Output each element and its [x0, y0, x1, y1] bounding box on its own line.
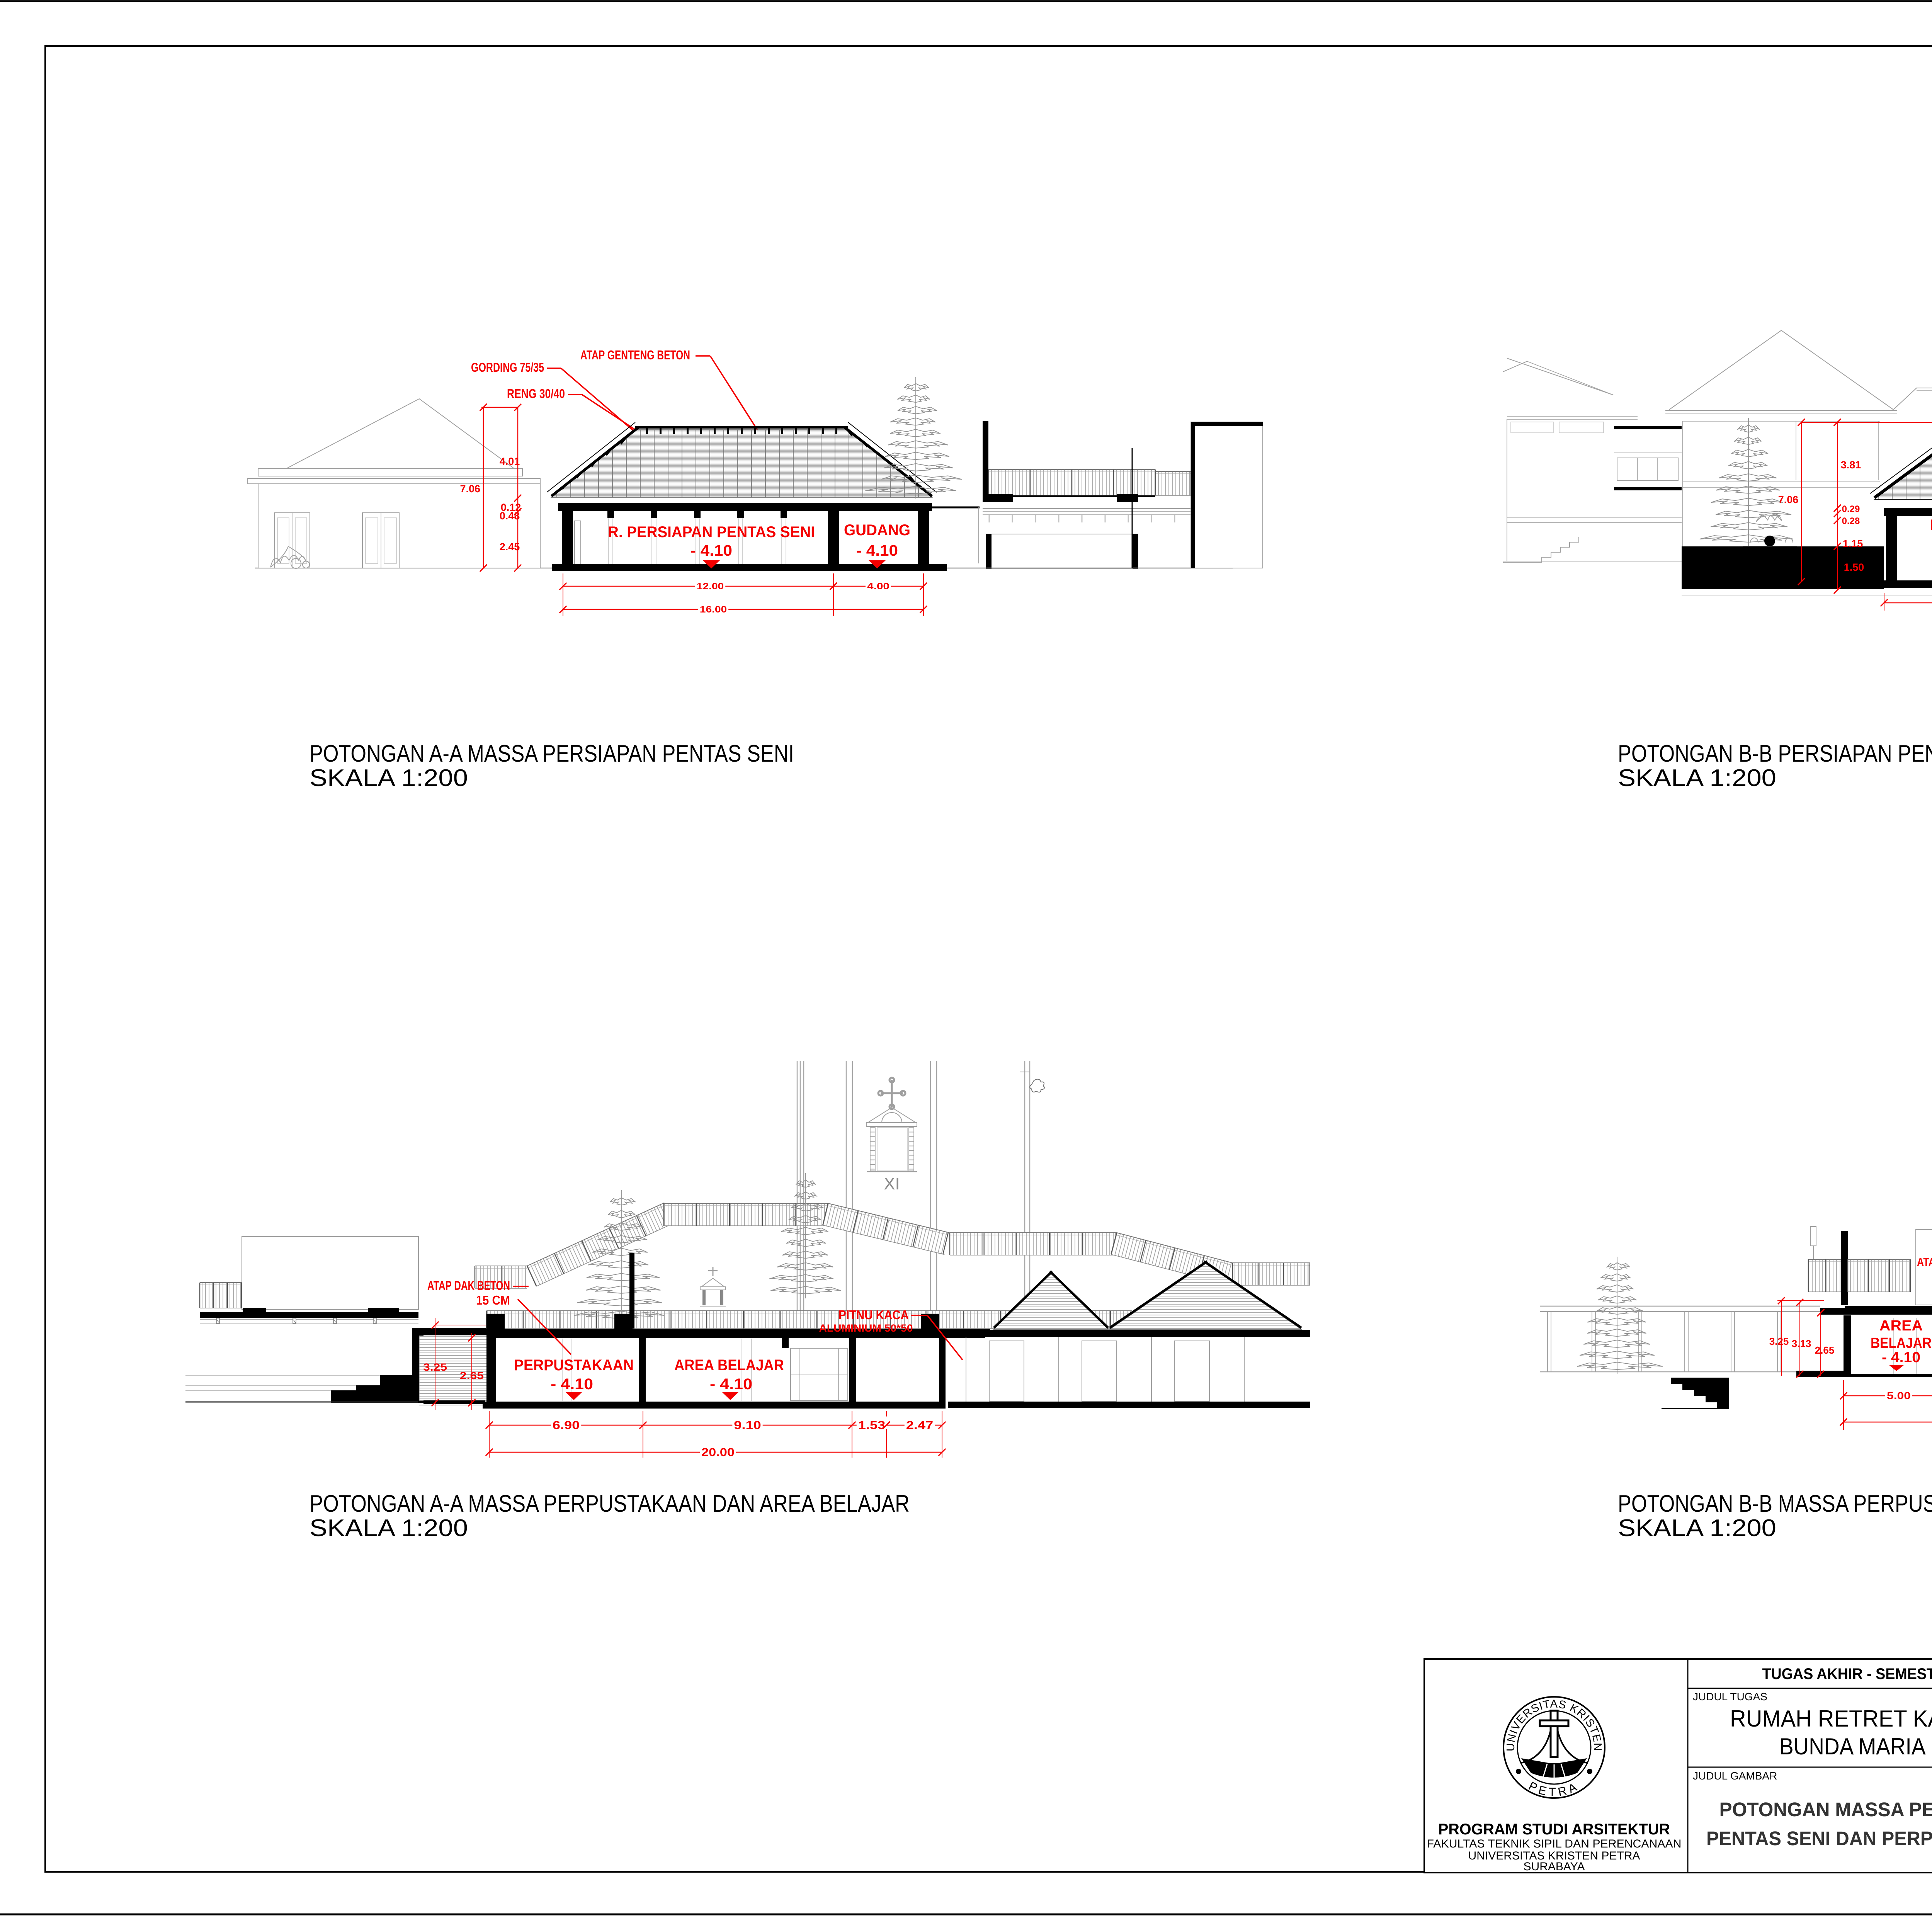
svg-text:AREA BELAJAR: AREA BELAJAR	[674, 1357, 784, 1374]
svg-text:POTONGAN A-A MASSA PERSIAPAN P: POTONGAN A-A MASSA PERSIAPAN PENTAS SENI	[310, 740, 794, 767]
svg-text:0.29: 0.29	[1842, 504, 1860, 514]
svg-text:ATAP DAK BETON: ATAP DAK BETON	[427, 1278, 510, 1293]
svg-text:POTONGAN B-B PERSIAPAN PENTAS: POTONGAN B-B PERSIAPAN PENTAS SENI	[1618, 740, 1932, 767]
svg-text:R. PERSIAPAN PENTAS SENI: R. PERSIAPAN PENTAS SENI	[608, 524, 815, 541]
svg-text:2.65: 2.65	[1815, 1344, 1835, 1356]
svg-text:3.25: 3.25	[1769, 1335, 1789, 1347]
svg-text:2.45: 2.45	[500, 541, 520, 553]
svg-text:5.00: 5.00	[1887, 1390, 1911, 1402]
svg-text:2.65: 2.65	[460, 1370, 484, 1381]
svg-text:SKALA 1:200: SKALA 1:200	[310, 765, 468, 791]
svg-text:JUDUL TUGAS: JUDUL TUGAS	[1693, 1691, 1767, 1703]
svg-text:1.50: 1.50	[1844, 561, 1864, 573]
svg-text:4.00: 4.00	[867, 581, 889, 592]
svg-text:12.00: 12.00	[697, 581, 724, 592]
svg-text:3.25: 3.25	[423, 1361, 447, 1373]
svg-text:- 4.10: - 4.10	[690, 542, 732, 559]
svg-text:9.10: 9.10	[734, 1419, 761, 1432]
svg-text:PITNU KACA: PITNU KACA	[838, 1308, 909, 1322]
svg-text:- 4.10: - 4.10	[856, 542, 898, 559]
svg-text:BELAJAR: BELAJAR	[1871, 1335, 1932, 1351]
svg-text:PERPUSTAKAAN: PERPUSTAKAAN	[514, 1357, 634, 1374]
svg-text:POTONGAN A-A MASSA PERPUSTAKAA: POTONGAN A-A MASSA PERPUSTAKAAN DAN AREA…	[310, 1490, 910, 1517]
svg-text:1.53: 1.53	[858, 1419, 885, 1432]
svg-text:4.01: 4.01	[500, 456, 520, 467]
svg-text:2.47: 2.47	[906, 1419, 933, 1432]
svg-text:7.06: 7.06	[460, 483, 480, 495]
svg-text:SURABAYA: SURABAYA	[1524, 1860, 1585, 1873]
svg-text:3.13: 3.13	[1792, 1338, 1811, 1349]
svg-text:- 4.10: - 4.10	[551, 1376, 593, 1393]
svg-text:0.48: 0.48	[500, 510, 520, 522]
svg-text:7.06: 7.06	[1778, 494, 1799, 505]
svg-text:- 4.10: - 4.10	[1882, 1349, 1920, 1366]
svg-text:3.81: 3.81	[1841, 459, 1861, 471]
svg-text:R. PERSIAPAN: R. PERSIAPAN	[1930, 517, 1932, 534]
svg-text:GUDANG: GUDANG	[844, 522, 910, 539]
svg-text:0.28: 0.28	[1842, 516, 1860, 526]
svg-text:XI: XI	[884, 1174, 900, 1193]
svg-text:SKALA 1:200: SKALA 1:200	[1618, 765, 1776, 791]
svg-text:AREA: AREA	[1879, 1318, 1923, 1334]
svg-text:PENTAS SENI DAN PERPUSTAKAAN: PENTAS SENI DAN PERPUSTAKAAN	[1706, 1827, 1932, 1849]
svg-text:15 CM: 15 CM	[476, 1293, 510, 1307]
svg-text:TUGAS AKHIR - SEMESTER GENAP 2: TUGAS AKHIR - SEMESTER GENAP 2023/2024	[1762, 1666, 1932, 1683]
svg-text:16.00: 16.00	[700, 604, 727, 615]
svg-text:GORDING 75/35: GORDING 75/35	[471, 360, 544, 374]
svg-text:ATAP DAK BETON: ATAP DAK BETON	[1917, 1256, 1932, 1269]
svg-text:ATAP GENTENG BETON: ATAP GENTENG BETON	[580, 348, 690, 362]
svg-text:SKALA 1:200: SKALA 1:200	[1618, 1515, 1776, 1541]
svg-text:6.90: 6.90	[553, 1419, 580, 1432]
svg-text:20.00: 20.00	[701, 1446, 735, 1459]
svg-text:- 4.10: - 4.10	[710, 1376, 752, 1393]
svg-text:JUDUL GAMBAR: JUDUL GAMBAR	[1693, 1770, 1777, 1782]
svg-text:RENG 30/40: RENG 30/40	[507, 386, 565, 401]
svg-text:BUNDA MARIA BANJARBARU: BUNDA MARIA BANJARBARU	[1779, 1734, 1932, 1759]
svg-text:POTONGAN MASSA PERSIAPAN: POTONGAN MASSA PERSIAPAN	[1719, 1798, 1932, 1820]
svg-text:1.15: 1.15	[1843, 538, 1863, 550]
svg-text:PROGRAM STUDI ARSITEKTUR: PROGRAM STUDI ARSITEKTUR	[1438, 1821, 1670, 1838]
svg-text:ALUMINIUM 50*50: ALUMINIUM 50*50	[819, 1322, 913, 1334]
svg-text:POTONGAN B-B MASSA PERPUSTAKAA: POTONGAN B-B MASSA PERPUSTAKAAN DAN AREA…	[1618, 1490, 1932, 1517]
svg-text:SKALA 1:200: SKALA 1:200	[310, 1515, 468, 1541]
svg-text:FAKULTAS TEKNIK SIPIL DAN PERE: FAKULTAS TEKNIK SIPIL DAN PERENCANAAN	[1427, 1837, 1682, 1850]
svg-text:RUMAH RETRET KATOLIK DI PAROKI: RUMAH RETRET KATOLIK DI PAROKI	[1730, 1706, 1932, 1732]
